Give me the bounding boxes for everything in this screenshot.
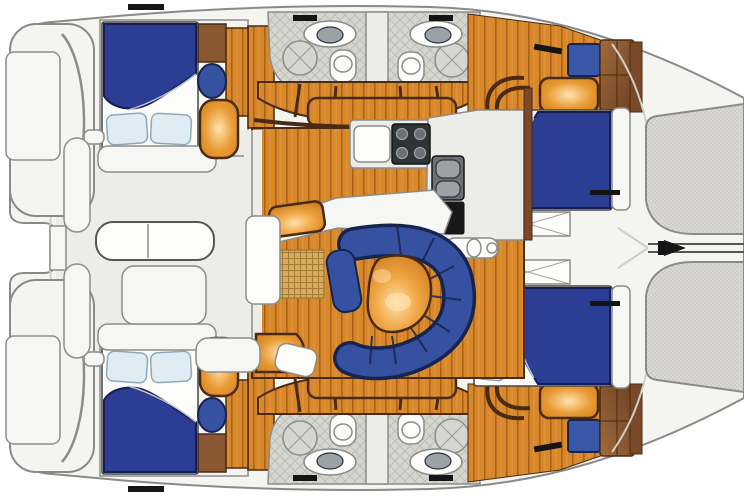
deck-fitting — [467, 239, 481, 257]
worktop — [354, 126, 390, 162]
floorplan-svg: Catamaran floor plan — [0, 0, 744, 496]
cockpit-seat — [122, 266, 206, 324]
stove-burner-icon — [392, 124, 430, 164]
salon: Salon with settee and table Galley: stov… — [244, 88, 532, 378]
transom-beam — [50, 226, 66, 270]
corner-seat — [196, 338, 260, 372]
bulkhead-wood — [524, 88, 532, 240]
salon-door — [246, 216, 280, 304]
catamaran-floorplan: Catamaran floor plan — [0, 0, 744, 496]
cockpit-table — [96, 222, 214, 260]
table-highlight — [385, 293, 411, 311]
table-highlight — [373, 269, 391, 283]
